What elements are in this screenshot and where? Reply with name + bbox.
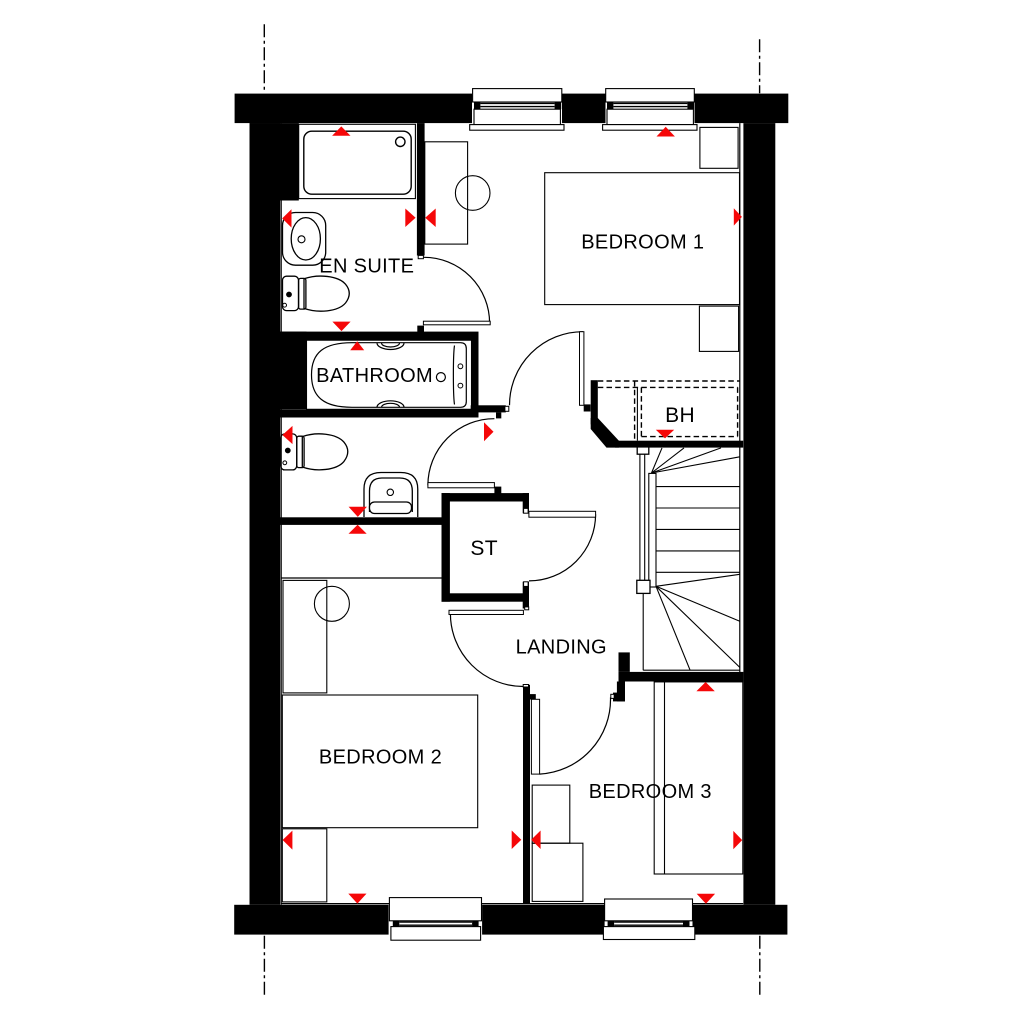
- svg-text:EN SUITE: EN SUITE: [319, 255, 414, 277]
- svg-text:BEDROOM 1: BEDROOM 1: [581, 232, 704, 254]
- svg-text:BH: BH: [665, 404, 695, 427]
- svg-text:ST: ST: [470, 537, 498, 560]
- svg-text:BEDROOM 2: BEDROOM 2: [319, 746, 442, 768]
- svg-text:LANDING: LANDING: [516, 637, 607, 659]
- svg-text:BATHROOM: BATHROOM: [316, 365, 433, 387]
- svg-text:BEDROOM 3: BEDROOM 3: [589, 781, 712, 803]
